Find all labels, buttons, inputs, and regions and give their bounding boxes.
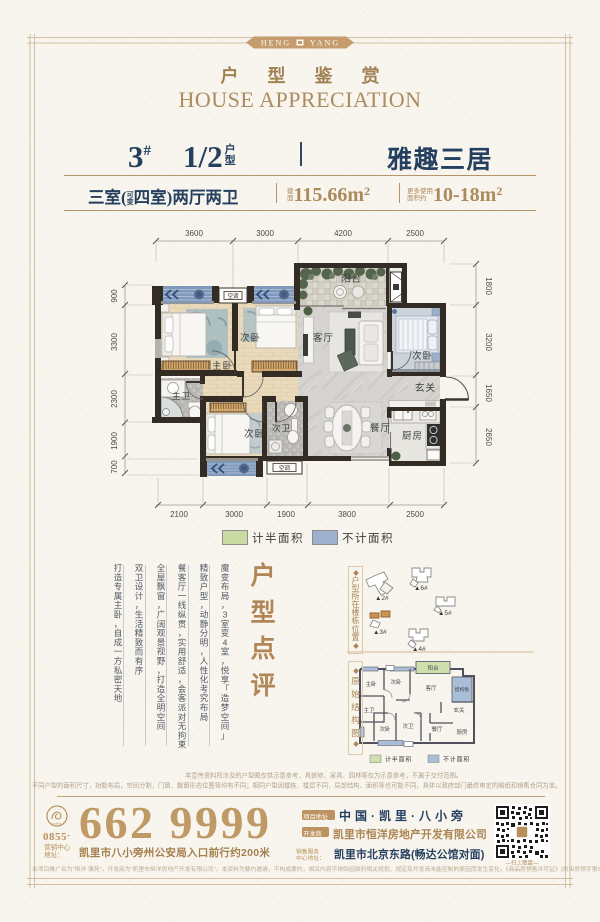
svg-text:主卧: 主卧 [365,680,377,688]
svg-text:▲2#: ▲2# [375,595,389,602]
svg-text:次卧: 次卧 [379,725,391,733]
svg-text:▲3#: ▲3# [373,629,387,636]
svg-text:计半面积: 计半面积 [385,756,412,764]
svg-text:次卧: 次卧 [390,678,402,686]
svg-text:厨房: 厨房 [456,728,468,736]
svg-text:▲5#: ▲5# [438,610,452,617]
svg-text:阳台: 阳台 [427,664,439,672]
svg-text:客厅: 客厅 [425,684,437,692]
svg-text:不计面积: 不计面积 [443,756,470,764]
svg-text:▲6#: ▲6# [414,585,428,592]
svg-text:主卫: 主卫 [363,706,375,714]
svg-text:hotline: hotline [53,822,62,826]
svg-text:玄关: 玄关 [453,706,465,714]
svg-text:餐厅: 餐厅 [431,725,443,733]
svg-text:次卫: 次卫 [402,722,414,730]
svg-text:结构板: 结构板 [455,686,470,693]
